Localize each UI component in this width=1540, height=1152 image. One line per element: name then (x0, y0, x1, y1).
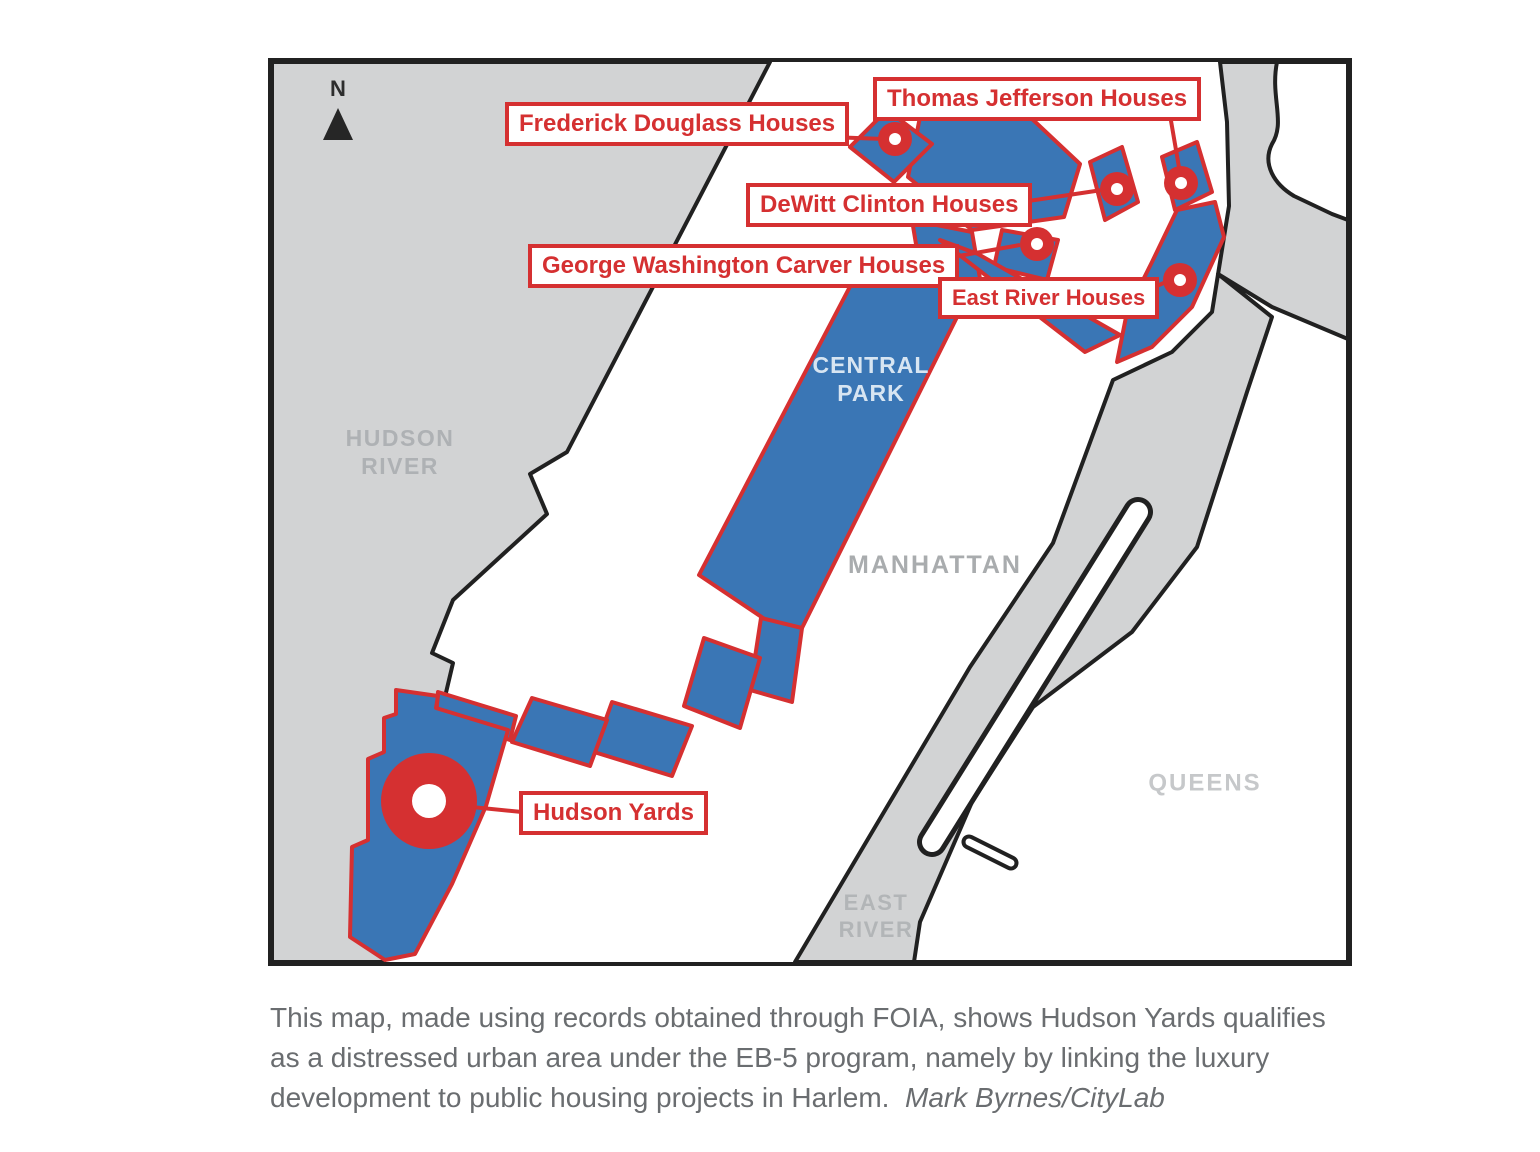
tract-chain-d (512, 698, 607, 766)
map-frame: N HUDSON RIVER CENTRAL PARK MANHATTAN QU… (268, 58, 1352, 966)
caption-credit: Mark Byrnes/CityLab (905, 1082, 1165, 1113)
compass-label: N (308, 78, 368, 100)
marker-hudson-yards (381, 753, 477, 849)
callout-east-river-houses: East River Houses (938, 277, 1159, 319)
caption-text: This map, made using records obtained th… (270, 1002, 1326, 1113)
callout-frederick-douglass-houses: Frederick Douglass Houses (505, 102, 849, 146)
marker-clinton (1100, 172, 1134, 206)
central-park-tract (699, 256, 967, 628)
marker-carver (1020, 227, 1054, 261)
callout-dewitt-clinton-houses: DeWitt Clinton Houses (746, 183, 1032, 227)
article-figure: N HUDSON RIVER CENTRAL PARK MANHATTAN QU… (0, 0, 1540, 1152)
callout-thomas-jefferson-houses: Thomas Jefferson Houses (873, 77, 1201, 121)
callout-hudson-yards: Hudson Yards (519, 791, 708, 835)
tract-chain-c (594, 702, 692, 776)
callout-george-washington-carver-houses: George Washington Carver Houses (528, 244, 959, 288)
figure-caption: This map, made using records obtained th… (270, 998, 1362, 1118)
north-arrow-icon (323, 108, 353, 140)
marker-douglass (878, 122, 912, 156)
marker-east-river (1163, 263, 1197, 297)
marker-jefferson (1164, 166, 1198, 200)
tract-chain-b (684, 638, 760, 728)
compass-north: N (308, 78, 368, 140)
